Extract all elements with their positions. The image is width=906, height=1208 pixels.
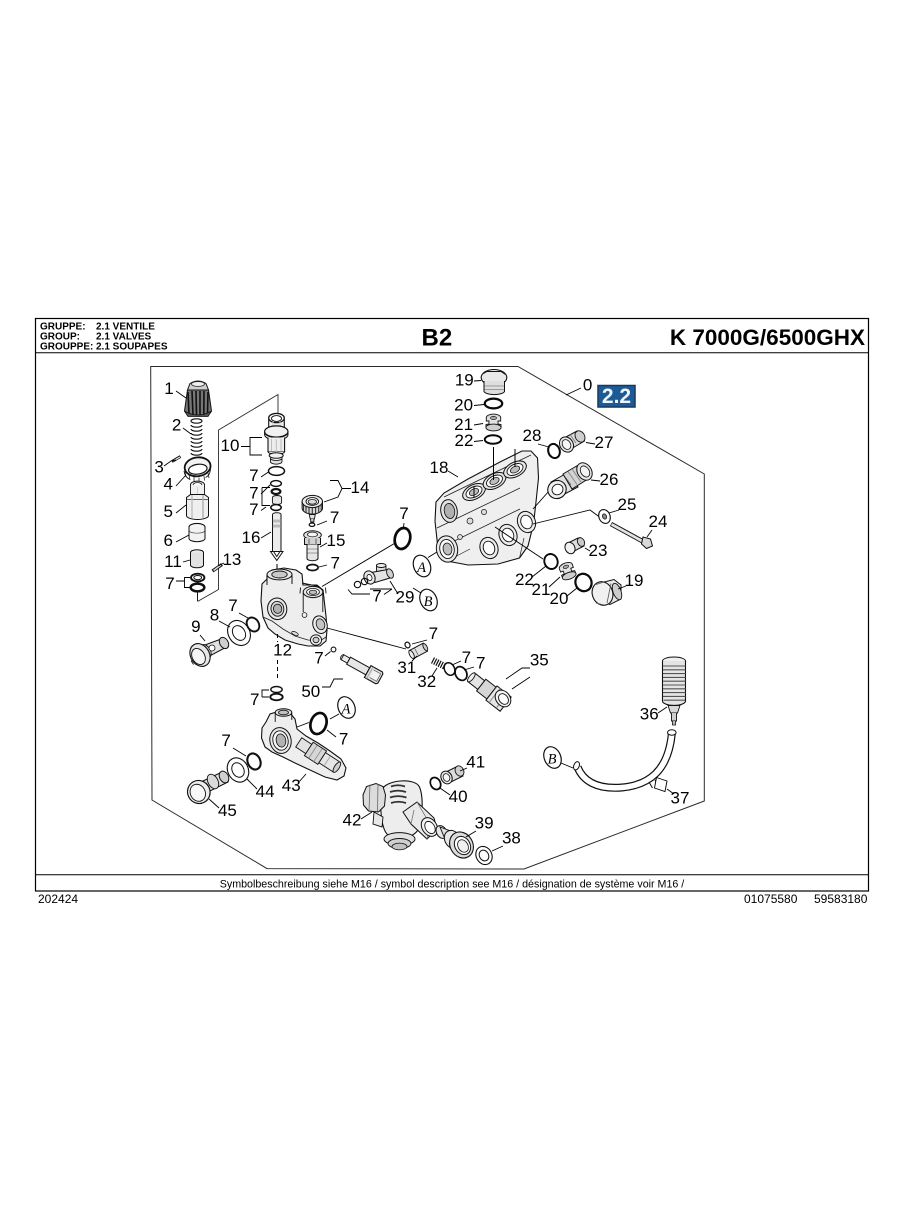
svg-text:38: 38 (502, 828, 521, 847)
svg-text:50: 50 (301, 682, 320, 701)
svg-text:6: 6 (163, 531, 172, 550)
svg-text:28: 28 (523, 426, 542, 445)
svg-text:16: 16 (242, 528, 261, 547)
svg-text:59583180: 59583180 (814, 892, 868, 906)
svg-text:1: 1 (164, 379, 173, 398)
svg-text:20: 20 (454, 395, 473, 414)
svg-text:24: 24 (649, 512, 668, 531)
svg-text:7: 7 (330, 508, 339, 527)
svg-text:19: 19 (455, 370, 474, 389)
svg-text:01075580: 01075580 (744, 892, 798, 906)
svg-text:5: 5 (163, 502, 172, 521)
svg-text:10: 10 (221, 436, 240, 455)
svg-text:42: 42 (343, 811, 362, 830)
svg-text:26: 26 (600, 470, 619, 489)
svg-text:7: 7 (330, 553, 339, 572)
svg-text:11: 11 (164, 552, 182, 571)
svg-text:0: 0 (583, 375, 592, 394)
svg-text:7: 7 (249, 500, 258, 519)
svg-text:12: 12 (273, 640, 292, 659)
svg-text:14: 14 (351, 478, 370, 497)
svg-text:7: 7 (476, 653, 485, 672)
svg-text:7: 7 (228, 596, 237, 615)
svg-text:2.1 SOUPAPES: 2.1 SOUPAPES (96, 342, 168, 353)
svg-text:23: 23 (589, 541, 608, 560)
svg-text:15: 15 (327, 531, 346, 550)
svg-text:7: 7 (429, 624, 438, 643)
svg-text:18: 18 (430, 458, 449, 477)
svg-text:7: 7 (314, 649, 323, 668)
svg-text:36: 36 (640, 705, 659, 724)
svg-text:B: B (424, 594, 433, 610)
svg-text:7: 7 (221, 731, 230, 750)
svg-text:GROUPPE:: GROUPPE: (40, 342, 93, 353)
svg-text:7: 7 (399, 504, 408, 523)
svg-text:3: 3 (154, 457, 163, 476)
svg-text:8: 8 (210, 606, 219, 625)
svg-text:29: 29 (396, 588, 415, 607)
svg-text:32: 32 (417, 672, 436, 691)
svg-text:43: 43 (282, 776, 301, 795)
svg-text:A: A (416, 560, 426, 576)
svg-text:13: 13 (222, 550, 241, 569)
svg-text:37: 37 (671, 789, 690, 808)
svg-text:35: 35 (530, 651, 549, 670)
svg-text:B2: B2 (422, 325, 453, 352)
svg-text:2.2: 2.2 (602, 385, 631, 408)
svg-text:7: 7 (165, 574, 174, 593)
svg-text:Symbolbeschreibung siehe M16 /: Symbolbeschreibung siehe M16 / symbol de… (220, 879, 685, 891)
svg-text:39: 39 (475, 814, 494, 833)
svg-text:25: 25 (618, 495, 637, 514)
svg-text:K 7000G/6500GHX: K 7000G/6500GHX (670, 325, 865, 350)
svg-text:41: 41 (466, 752, 485, 771)
svg-text:202424: 202424 (38, 892, 78, 906)
svg-text:7: 7 (339, 730, 348, 749)
svg-text:A: A (341, 702, 351, 718)
svg-text:21: 21 (532, 580, 551, 599)
svg-text:7: 7 (462, 648, 471, 667)
svg-text:20: 20 (550, 589, 569, 608)
svg-text:45: 45 (218, 801, 237, 820)
svg-text:2: 2 (172, 415, 181, 434)
svg-text:19: 19 (625, 571, 644, 590)
svg-text:31: 31 (397, 658, 416, 677)
svg-text:B: B (548, 752, 557, 768)
svg-text:7: 7 (249, 466, 258, 485)
svg-text:9: 9 (191, 617, 200, 636)
svg-text:4: 4 (163, 475, 172, 494)
svg-text:27: 27 (595, 433, 614, 452)
svg-text:44: 44 (256, 782, 275, 801)
svg-text:7: 7 (250, 690, 259, 709)
svg-text:40: 40 (449, 787, 468, 806)
svg-text:22: 22 (455, 431, 474, 450)
